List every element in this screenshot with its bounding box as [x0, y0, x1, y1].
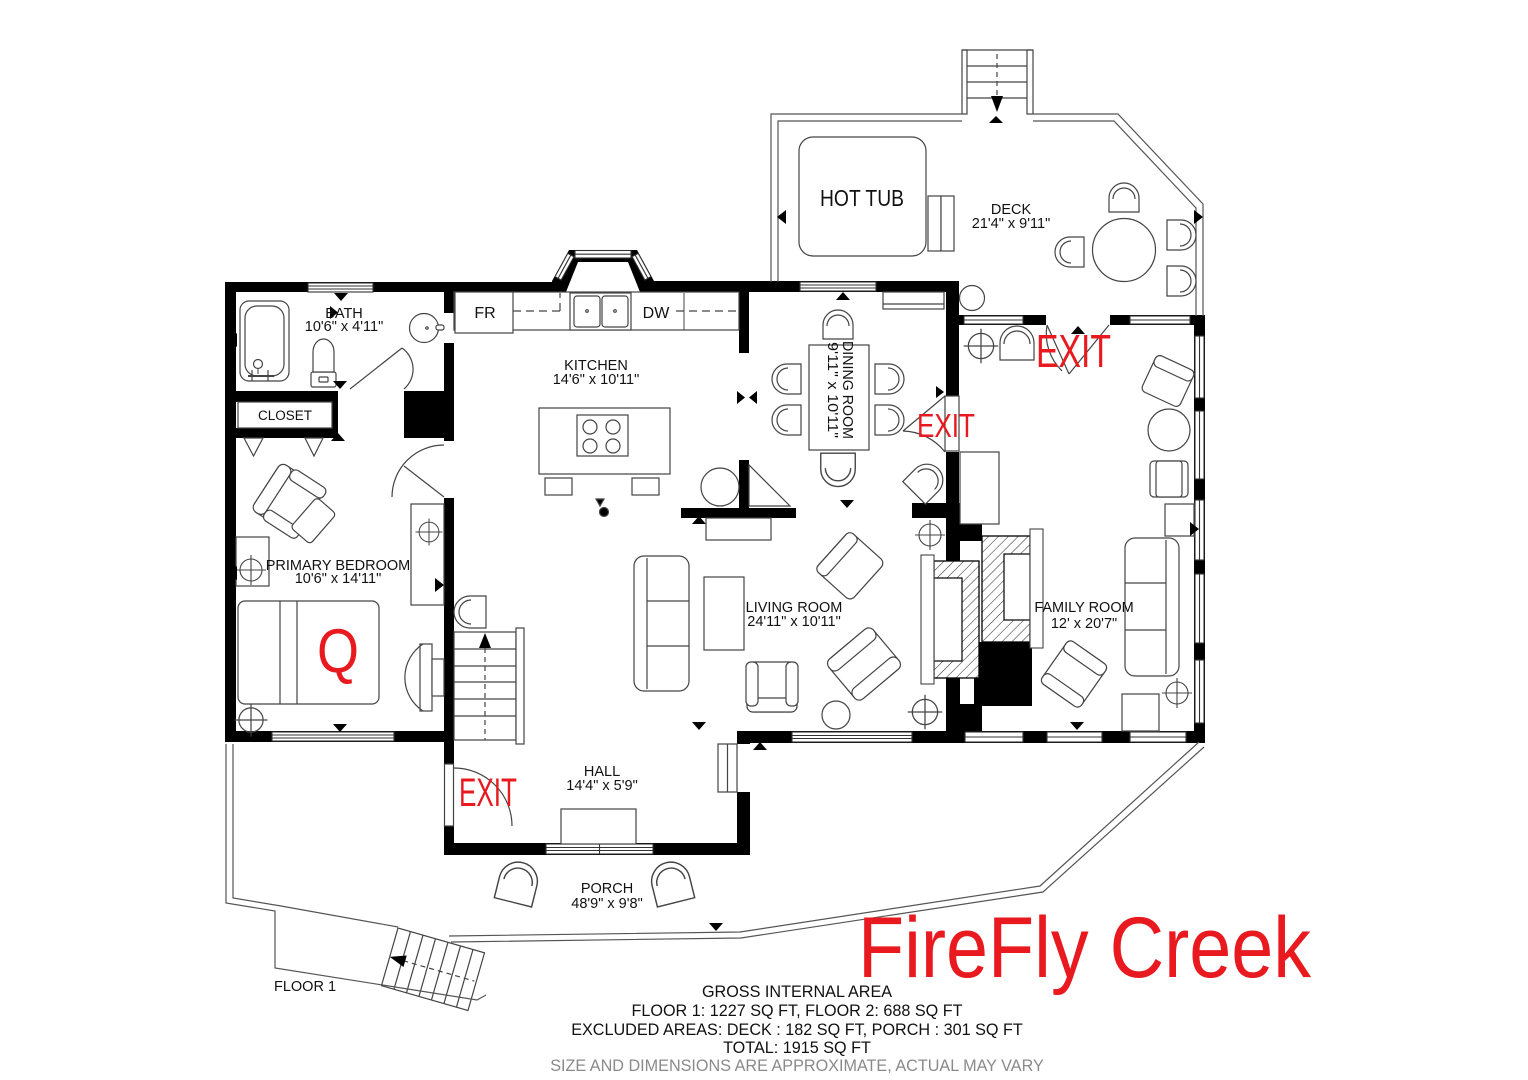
svg-text:DW: DW: [643, 305, 671, 322]
svg-text:10'6" x 4'11": 10'6" x 4'11": [305, 319, 383, 335]
svg-text:21'4" x 9'11": 21'4" x 9'11": [972, 216, 1050, 232]
svg-text:EXIT: EXIT: [1036, 325, 1111, 377]
svg-text:DINING ROOM: DINING ROOM: [839, 341, 855, 439]
svg-text:EXIT: EXIT: [917, 407, 975, 444]
svg-text:FR: FR: [474, 305, 495, 322]
svg-text:Q: Q: [317, 617, 359, 686]
svg-text:GROSS INTERNAL AREA: GROSS INTERNAL AREA: [702, 983, 892, 1001]
svg-text:12' x 20'7": 12' x 20'7": [1051, 616, 1117, 632]
svg-text:FireFly Creek: FireFly Creek: [858, 900, 1312, 996]
svg-text:TOTAL: 1915 SQ FT: TOTAL: 1915 SQ FT: [723, 1039, 871, 1057]
svg-text:EXCLUDED AREAS: DECK : 182 SQ: EXCLUDED AREAS: DECK : 182 SQ FT, PORCH …: [571, 1021, 1023, 1039]
svg-text:9'11" x 10'11": 9'11" x 10'11": [824, 342, 840, 438]
svg-text:FLOOR 1: 1227 SQ FT, FLOOR 2:: FLOOR 1: 1227 SQ FT, FLOOR 2: 688 SQ FT: [631, 1002, 962, 1020]
svg-text:14'4" x 5'9": 14'4" x 5'9": [566, 778, 637, 794]
svg-text:10'6" x 14'11": 10'6" x 14'11": [295, 571, 382, 587]
svg-text:FLOOR 1: FLOOR 1: [274, 979, 336, 995]
svg-text:24'11" x 10'11": 24'11" x 10'11": [747, 614, 841, 630]
svg-text:HOT TUB: HOT TUB: [820, 185, 904, 211]
svg-text:14'6" x 10'11": 14'6" x 10'11": [553, 372, 640, 388]
svg-text:EXIT: EXIT: [459, 771, 517, 815]
svg-text:FAMILY ROOM: FAMILY ROOM: [1034, 600, 1133, 616]
svg-text:SIZE AND DIMENSIONS ARE APPROX: SIZE AND DIMENSIONS ARE APPROXIMATE, ACT…: [550, 1057, 1044, 1075]
svg-text:48'9" x 9'8": 48'9" x 9'8": [571, 896, 642, 912]
svg-text:PORCH: PORCH: [581, 881, 633, 897]
svg-text:CLOSET: CLOSET: [258, 408, 312, 423]
